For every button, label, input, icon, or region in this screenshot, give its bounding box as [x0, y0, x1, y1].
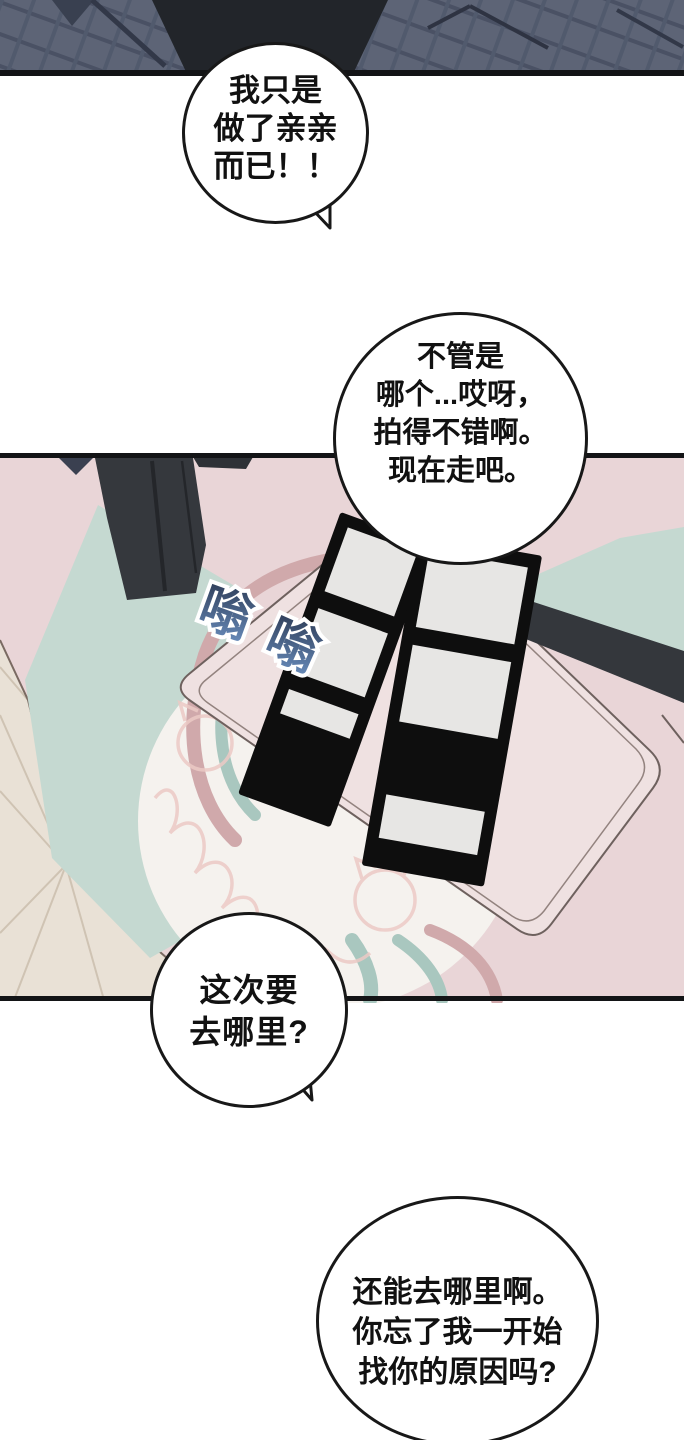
- bubble-line: 现在走吧。: [336, 452, 585, 490]
- bubble-line: 做了亲亲: [185, 110, 366, 148]
- comic-page: 嗡 嗡 我只是 做了亲亲 而已！！ 不管是 哪个...哎呀， 拍得不错啊。 现在…: [0, 0, 684, 1440]
- speech-bubble-1: 我只是 做了亲亲 而已！！: [182, 42, 369, 224]
- bubble-line: 拍得不错啊。: [336, 414, 585, 452]
- bubble-line: 而已！！: [185, 148, 366, 186]
- bubble-line: 找你的原因吗?: [319, 1353, 596, 1393]
- bubble-line: 这次要: [153, 969, 345, 1011]
- speech-bubble-4: 还能去哪里啊。 你忘了我一开始 找你的原因吗?: [316, 1196, 599, 1440]
- speech-bubble-3: 这次要 去哪里?: [150, 912, 348, 1108]
- bubble-line: 还能去哪里啊。: [319, 1273, 596, 1313]
- panel-middle: 嗡 嗡: [0, 453, 684, 1003]
- bubble-line: 不管是: [336, 338, 585, 376]
- bubble-line: 你忘了我一开始: [319, 1313, 596, 1353]
- bubble-line: 哪个...哎呀，: [336, 376, 585, 414]
- jacket-right: [352, 0, 684, 76]
- bubble-line: 我只是: [185, 72, 366, 110]
- panel-top: [0, 0, 684, 76]
- bubble-line: 去哪里?: [153, 1011, 345, 1053]
- speech-bubble-2: 不管是 哪个...哎呀， 拍得不错啊。 现在走吧。: [333, 312, 588, 565]
